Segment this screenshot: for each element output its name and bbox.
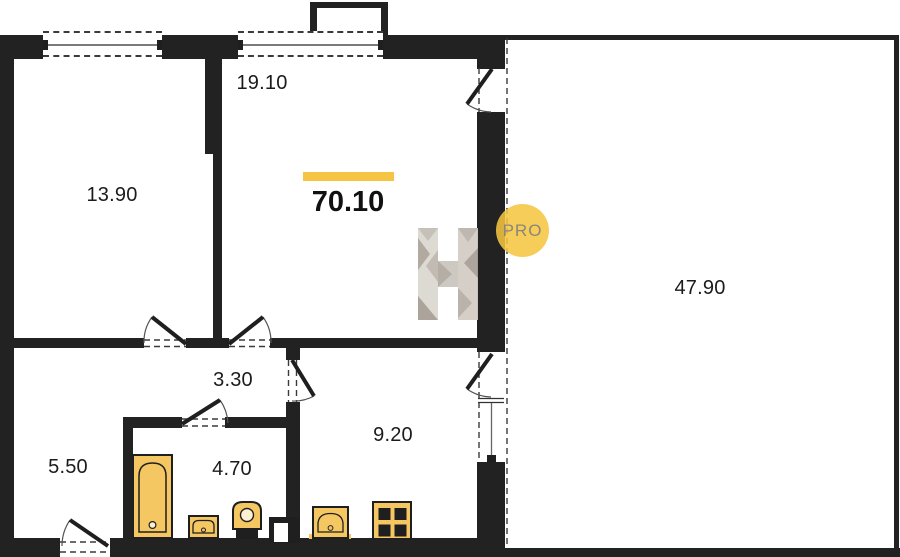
door-bathroom: [182, 400, 228, 424]
pro-badge-label: PRO: [503, 221, 543, 241]
door-kitchen: [292, 360, 314, 401]
plan-linework: [0, 0, 900, 557]
developer-logo-watermark: [418, 228, 478, 320]
bathtub-drain: [149, 522, 156, 529]
pro-badge: PRO: [496, 204, 549, 257]
area-label-bathroom: 4.70: [196, 458, 268, 481]
bathroom-sink: [189, 516, 218, 539]
dashed-lines: [60, 38, 507, 552]
kitchen-terrace-window: [478, 399, 504, 463]
total-area-label: 70.10: [293, 186, 403, 219]
stove: [373, 502, 411, 539]
area-label-bedroom: 13.90: [76, 184, 148, 207]
total-area-accent-bar: [303, 172, 394, 181]
area-label-living-room: 19.10: [226, 72, 298, 95]
window-end-tick: [487, 455, 496, 462]
kitchen-sink: [309, 507, 351, 539]
area-label-entry-hall: 5.50: [32, 456, 104, 479]
bathtub: [133, 455, 172, 538]
area-label-kitchen: 9.20: [357, 424, 429, 447]
area-label-hallway: 3.30: [197, 369, 269, 392]
floor-plan: PRO 70.10 13.90 19.10 47.90 3.30 5.50 4.…: [0, 0, 900, 557]
vent-shaft: [269, 517, 300, 543]
area-label-terrace: 47.90: [664, 277, 736, 300]
toilet: [233, 502, 261, 539]
